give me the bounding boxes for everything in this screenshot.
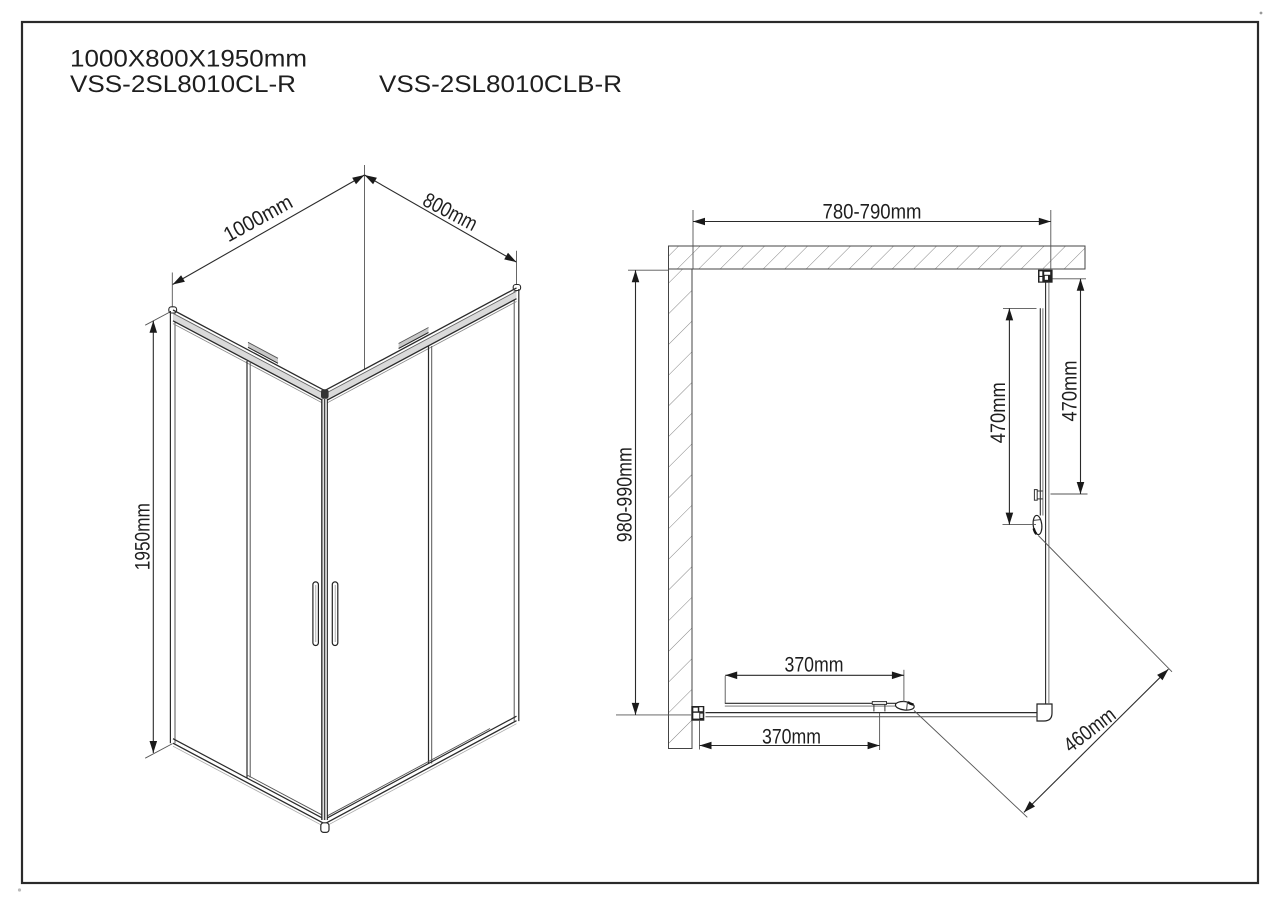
- svg-text:470mm: 470mm: [1058, 361, 1081, 422]
- svg-text:980-990mm: 980-990mm: [614, 447, 637, 542]
- svg-text:370mm: 370mm: [785, 654, 844, 677]
- svg-text:VSS-2SL8010CL-R: VSS-2SL8010CL-R: [70, 71, 296, 98]
- svg-text:370mm: 370mm: [762, 726, 821, 749]
- svg-text:780-790mm: 780-790mm: [823, 201, 922, 224]
- svg-text:VSS-2SL8010CLB-R: VSS-2SL8010CLB-R: [379, 71, 622, 98]
- svg-text:1950mm: 1950mm: [132, 503, 155, 570]
- svg-text:1000X800X1950mm: 1000X800X1950mm: [70, 46, 307, 73]
- svg-text:470mm: 470mm: [987, 382, 1010, 443]
